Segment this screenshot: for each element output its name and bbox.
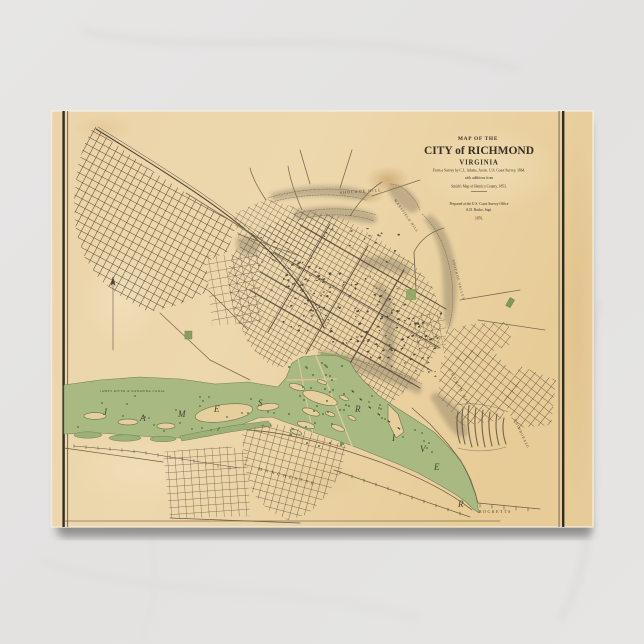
svg-text:M: M [177,409,186,419]
svg-text:R: R [457,499,464,509]
svg-text:with additions from: with additions from [465,176,494,180]
svg-text:ROCKETTS: ROCKETTS [479,509,512,514]
svg-text:1876.: 1876. [475,217,483,221]
svg-text:S: S [258,398,263,408]
svg-text:E: E [213,404,220,414]
svg-text:CITY of RICHMOND: CITY of RICHMOND [424,145,534,157]
svg-text:E: E [433,462,440,472]
svg-text:VIRGINIA: VIRGINIA [459,160,498,167]
svg-text:MAP OF THE: MAP OF THE [458,136,498,142]
svg-text:A: A [139,413,146,423]
svg-text:JAMES RIVER & KANAWHA CANAL: JAMES RIVER & KANAWHA CANAL [100,389,166,393]
svg-text:R: R [354,404,361,414]
svg-text:Prepared at the U.S. Coast Sur: Prepared at the U.S. Coast Survey Office [449,202,508,206]
